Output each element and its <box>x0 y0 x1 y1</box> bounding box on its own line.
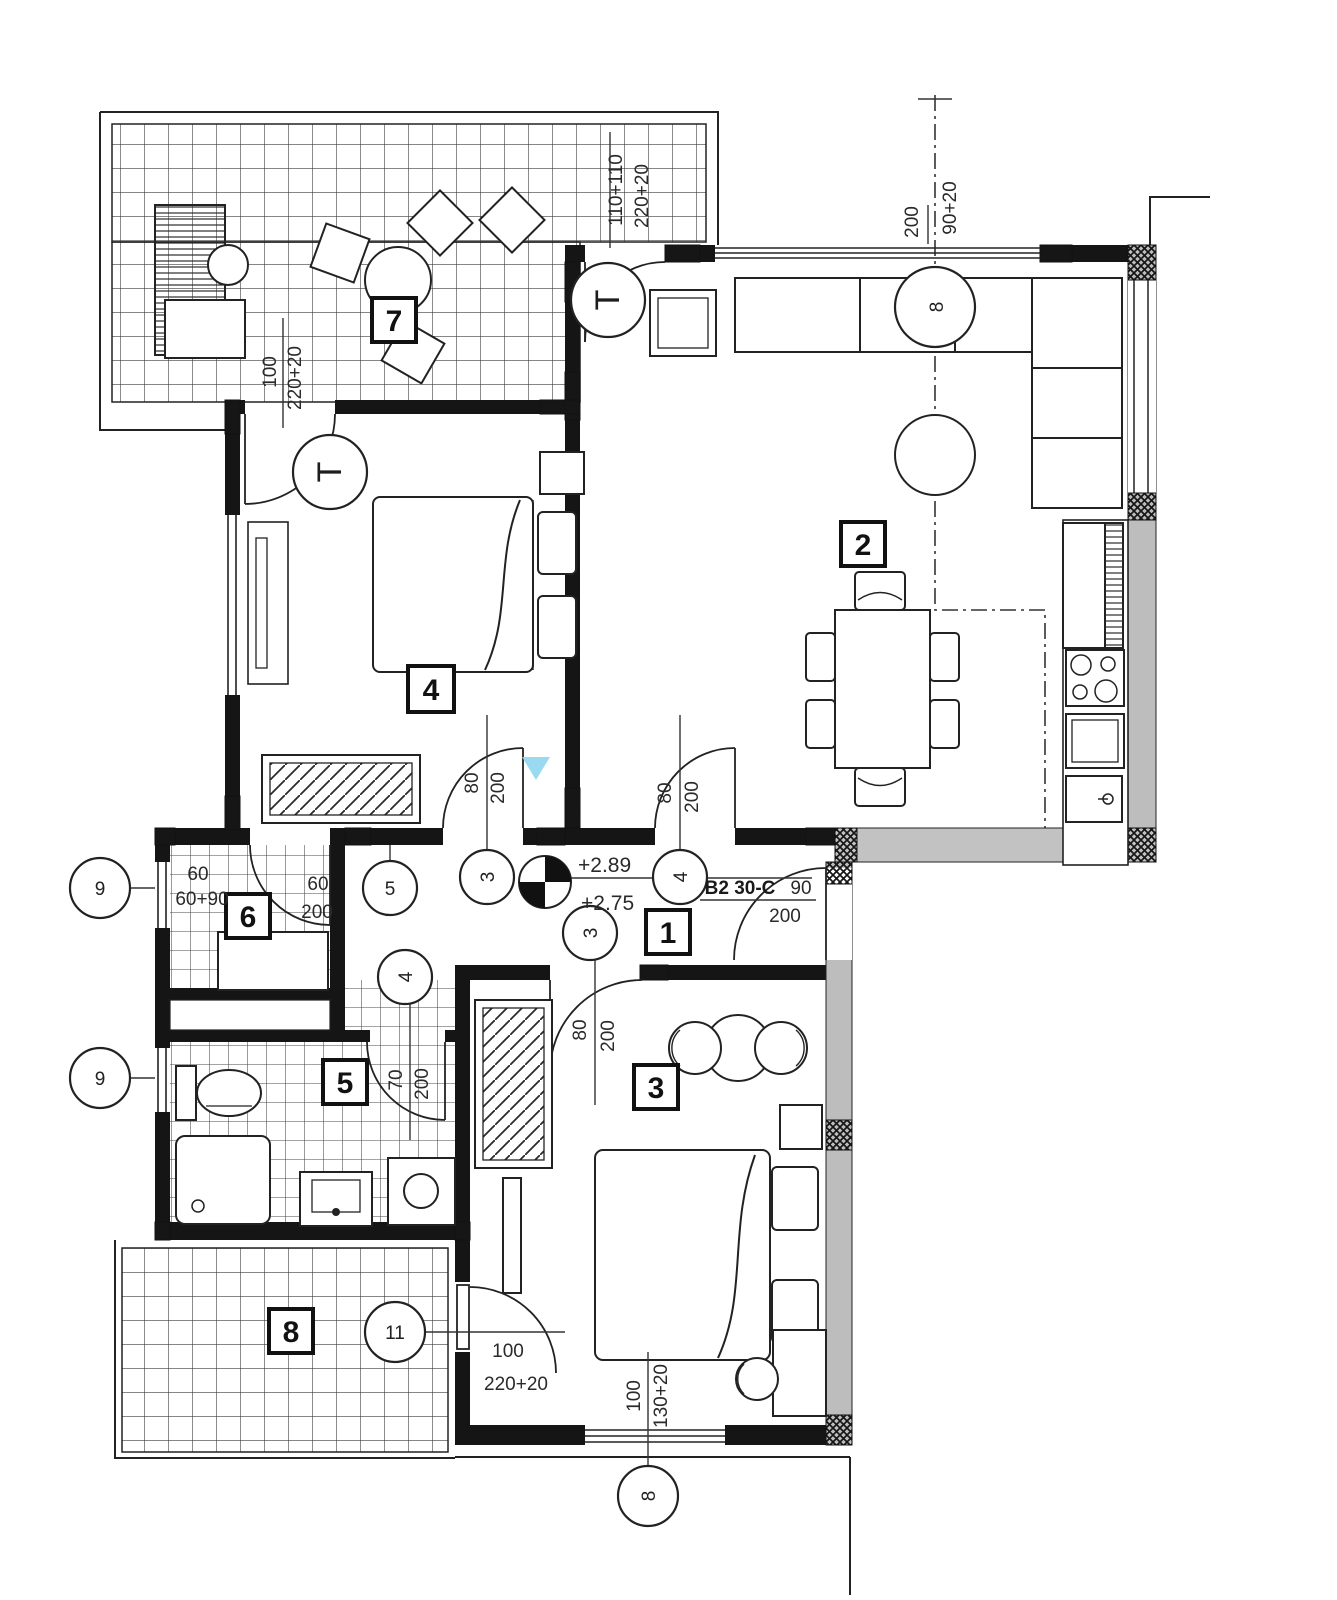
dim-bath-door-h: 200 <box>412 1068 433 1100</box>
level-lower: +2.75 <box>581 892 634 915</box>
dim-wc6-win-h: 60+90 <box>175 889 228 910</box>
watermark-triangle <box>522 757 550 780</box>
bed3-wardrobe <box>475 1000 552 1168</box>
floor-plan-page: 7 2 4 1 6 5 3 8 5 3 4 3 4 9 9 11 8 8 T T… <box>0 0 1337 1600</box>
kitchen-sink-2 <box>1066 776 1122 822</box>
dim-hall-door2-h: 200 <box>682 781 703 813</box>
dim-living-win-w: 200 <box>902 206 923 238</box>
dim-hall-door1-w: 80 <box>462 772 483 793</box>
bed4-window-cabinet <box>248 522 288 684</box>
installation-shaft <box>170 1000 330 1030</box>
dim-hall-door2-w: 80 <box>655 782 676 803</box>
terrace7-side-table <box>208 245 248 285</box>
bath-sink <box>300 1172 372 1226</box>
room-1-label: 1 <box>660 917 677 950</box>
dim-terrace-a: 110+110 <box>606 154 627 226</box>
dim-wc6-door-w: 60 <box>307 874 328 895</box>
unit-label: B2 30-C <box>705 878 776 899</box>
bed3-table-chairs <box>669 1015 807 1081</box>
ref-9b: 9 <box>95 1069 106 1090</box>
dim-living-win-h: 90+20 <box>940 181 961 234</box>
radiator-mark-living: T <box>589 290 627 311</box>
dim-terrace8-door-h: 220+20 <box>484 1374 548 1395</box>
dim-bed3-door-h: 200 <box>598 1020 619 1052</box>
ref-5: 5 <box>385 879 396 900</box>
dim-bed3-win-h: 130+20 <box>651 1364 672 1428</box>
level-marker <box>519 856 571 908</box>
bed3-nightstand-top <box>780 1105 822 1149</box>
ref-11: 11 <box>385 1323 405 1344</box>
room-2-label: 2 <box>855 529 872 562</box>
dim-bed4-door-w: 100 <box>260 356 281 388</box>
washing-machine <box>388 1158 455 1225</box>
ref-4b: 4 <box>396 971 417 982</box>
bed4 <box>373 452 584 672</box>
dining-set <box>806 572 959 806</box>
bed3-bed <box>595 1150 818 1360</box>
ref-3a: 3 <box>478 872 499 883</box>
dim-wc6-door-h: 200 <box>301 902 333 923</box>
entry-door-height: 200 <box>769 906 801 927</box>
dim-bed3-win-w: 100 <box>624 1380 645 1412</box>
room-8-label: 8 <box>283 1316 300 1349</box>
room-6-label: 6 <box>240 901 257 934</box>
dim-terrace-b: 220+20 <box>632 164 653 228</box>
kitchen-sink <box>1066 714 1124 768</box>
dim-terrace8-door-w: 100 <box>492 1341 524 1362</box>
ref-8-top: 8 <box>927 302 948 313</box>
level-upper: +2.89 <box>578 854 631 877</box>
wc6-fixture <box>218 932 328 990</box>
ref-4a: 4 <box>671 871 692 882</box>
dim-bath-door-w: 70 <box>386 1069 407 1090</box>
dim-wc6-win-w: 60 <box>187 864 208 885</box>
dim-bed3-door-w: 80 <box>570 1019 591 1040</box>
dim-bed4-door-h: 220+20 <box>285 346 306 410</box>
entry-door-width: 90 <box>790 878 811 899</box>
ref-3b: 3 <box>581 928 602 939</box>
ref-9a: 9 <box>95 879 106 900</box>
room-4-label: 4 <box>423 674 440 707</box>
bath-shower <box>176 1136 270 1224</box>
room-5-label: 5 <box>337 1067 354 1100</box>
dim-hall-door1-h: 200 <box>488 772 509 804</box>
floor-plan-drawing: 7 2 4 1 6 5 3 8 5 3 4 3 4 9 9 11 8 8 T T… <box>0 0 1337 1600</box>
room-7-label: 7 <box>386 305 403 338</box>
ref-8-bottom: 8 <box>639 1491 660 1502</box>
living-armchair <box>650 290 716 356</box>
bath-toilet <box>176 1066 261 1120</box>
bed3-tall-cabinet <box>503 1178 521 1293</box>
radiator-mark-bed4: T <box>311 462 349 483</box>
kitchen-run <box>1063 520 1128 865</box>
room-3-label: 3 <box>648 1072 665 1105</box>
living-round-table <box>895 415 975 495</box>
stove <box>1066 650 1124 706</box>
bed4-wardrobe <box>262 755 420 823</box>
